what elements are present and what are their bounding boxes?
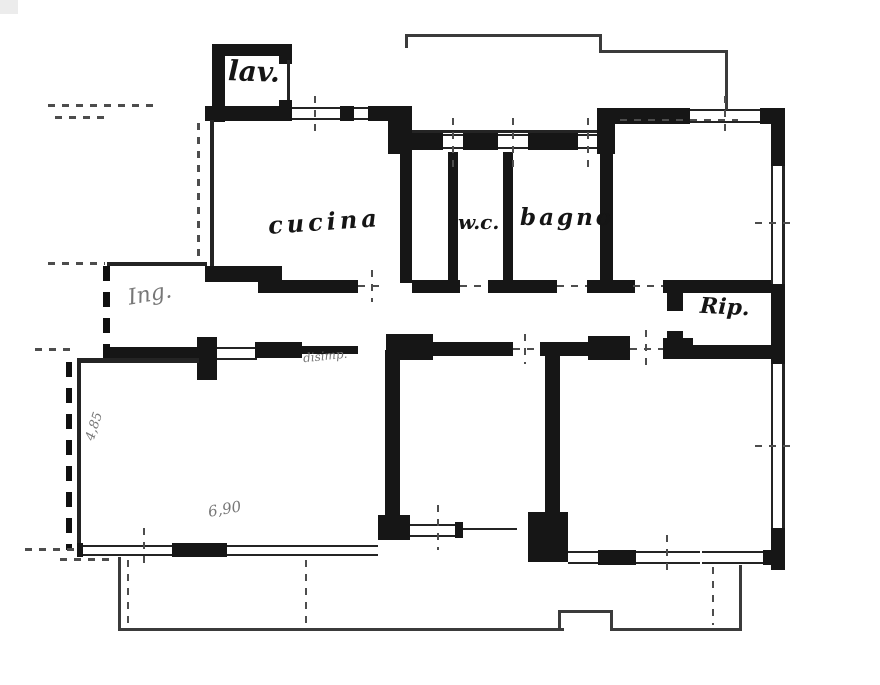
window-camera-s-1b	[410, 535, 455, 537]
wall-soggiorno-left	[77, 358, 81, 552]
window-soggiorno-3a	[227, 545, 378, 547]
wall-lightwell-b	[463, 133, 498, 150]
wall-lav-right-top	[279, 44, 292, 64]
wall-right-b	[771, 284, 785, 364]
lead-ing-top	[48, 262, 105, 265]
window-camera-s-1a	[410, 524, 455, 526]
wall-corridor-bot-e	[663, 338, 693, 359]
window-camera-se-3a	[702, 551, 763, 553]
corner-camera-se-sw	[528, 512, 568, 562]
threshold-ing-a	[217, 347, 257, 349]
wall-top-a	[205, 106, 292, 121]
room-label-disimpegno: disimp.	[302, 348, 347, 365]
wall-wc-right	[503, 152, 513, 282]
window-soggiorno-1b	[83, 554, 120, 556]
wall-soggiorno-bot	[172, 543, 227, 557]
window-right-1-outer	[782, 166, 785, 284]
lead-soggiorno-bot-2	[60, 558, 115, 561]
wall-camera-se-bot-a	[598, 550, 636, 565]
room-label-wc: w.c.	[458, 212, 499, 232]
tick-bot-window-1	[143, 528, 145, 568]
lead-soggiorno-mid	[35, 348, 77, 351]
wall-camera-s-right	[545, 350, 560, 515]
wall-cucina-left	[210, 120, 214, 268]
balcony-bot-right	[739, 565, 742, 631]
wall-ing-left-dashed	[103, 266, 110, 358]
wall-corridor-top-a	[258, 280, 358, 293]
corner-speck	[0, 0, 18, 14]
balcony-bot-left	[118, 557, 121, 630]
window-camera-se-1a	[568, 551, 598, 553]
tick-lightwell-3	[587, 118, 589, 170]
balcony-step-left	[558, 610, 561, 630]
wall-top-b	[340, 106, 354, 121]
window-camera-se-2a	[636, 551, 700, 553]
window-lav-right	[287, 60, 290, 104]
dash-corridor-top-3	[557, 285, 587, 287]
wall-top-c	[368, 106, 388, 121]
balcony-step-right	[610, 610, 613, 630]
tick-lightwell-2	[512, 118, 514, 170]
room-label-cucina: cucina	[267, 206, 381, 238]
dash-balcony-3	[712, 567, 714, 625]
wall-wc-left	[448, 152, 458, 282]
wall-ing-top	[107, 262, 207, 266]
wall-corridor-top-d	[587, 280, 635, 293]
wall-camera-s-bot	[455, 522, 463, 538]
dimension-bottom-wall: 6,90	[207, 499, 243, 520]
room-label-lav: lav.	[228, 57, 281, 87]
pillar-ing	[197, 337, 217, 380]
dash-balcony-1	[127, 560, 129, 626]
tick-camera-se-window	[666, 535, 668, 575]
wall-bagno-right	[600, 108, 613, 284]
wall-rip-left-a	[667, 293, 683, 311]
room-label-ing: Ing.	[126, 280, 173, 309]
dash-corridor-top-2	[460, 285, 488, 287]
wall-lightwell-a	[412, 133, 443, 150]
balcony-top-edge-3	[599, 50, 728, 53]
wall-corridor-top-b	[412, 280, 460, 293]
tick-top-window-3	[724, 96, 726, 138]
door-camera-s-sill	[463, 528, 517, 530]
tick-right-window-1	[755, 222, 795, 224]
dash-corridor-bot-1	[513, 348, 540, 350]
window-soggiorno-1a	[83, 545, 120, 547]
dimension-left-wall: 4,85	[84, 411, 105, 443]
window-soggiorno-3b	[227, 554, 378, 556]
wall-camera-se-bot-b	[763, 550, 785, 565]
lead-top-left-1	[48, 104, 153, 107]
room-label-rip: Rip.	[699, 295, 750, 320]
dash-corridor-top-1	[358, 285, 386, 287]
tick-lightwell-1	[452, 118, 454, 170]
room-label-bagno: bagno	[520, 206, 614, 229]
window-camera-se-1b	[568, 562, 598, 564]
window-top-2b	[354, 118, 368, 120]
window-soggiorno-2a	[120, 545, 172, 547]
window-camera-se-2b	[636, 562, 700, 564]
wall-cucina-right	[400, 121, 412, 283]
window-right-1-inner	[771, 166, 773, 284]
wall-corridor-top-c	[488, 280, 557, 293]
lead-soggiorno-bot-1	[25, 548, 77, 551]
window-top-1b	[292, 118, 340, 120]
wall-corridor-bot-a	[255, 342, 302, 358]
window-top-2a	[354, 107, 368, 109]
wall-camera-s-left	[385, 350, 400, 522]
dash-corridor-bot-2	[630, 348, 663, 350]
window-camera-se-3b	[702, 562, 763, 564]
dash-cucina-left	[197, 123, 200, 265]
threshold-ing-b	[217, 358, 257, 360]
corner-camera-s-sw	[378, 515, 410, 540]
tick-right-window-2	[755, 445, 795, 447]
dash-soggiorno-left	[66, 362, 72, 550]
balcony-bot-edge-b	[610, 628, 742, 631]
balcony-step-top	[558, 610, 613, 613]
window-top-1a	[292, 107, 340, 109]
lead-top-left-2	[55, 116, 105, 119]
tick-top-right-axis	[620, 119, 738, 121]
dash-balcony-2	[305, 560, 307, 626]
wall-lightwell-c	[528, 133, 578, 150]
tick-top-window-1	[314, 96, 316, 132]
dash-corridor-top-4	[633, 285, 663, 287]
floor-plan: lav. cucina w.c. bagno Rip. Ing. disimp.…	[0, 0, 880, 685]
balcony-top-edge-1	[405, 34, 601, 37]
wall-soggiorno-top	[81, 358, 199, 363]
window-soggiorno-2b	[120, 554, 172, 556]
balcony-bot-edge-a	[118, 628, 564, 631]
tick-bot-window-2	[437, 505, 439, 550]
wall-camera-ne-bottom	[663, 280, 771, 293]
wall-top-d	[615, 108, 690, 124]
pillar-camera-se-nw	[588, 336, 630, 360]
wall-corridor-bot-c	[433, 342, 513, 356]
balcony-top-tick	[405, 34, 408, 48]
wall-right-a	[771, 108, 785, 166]
